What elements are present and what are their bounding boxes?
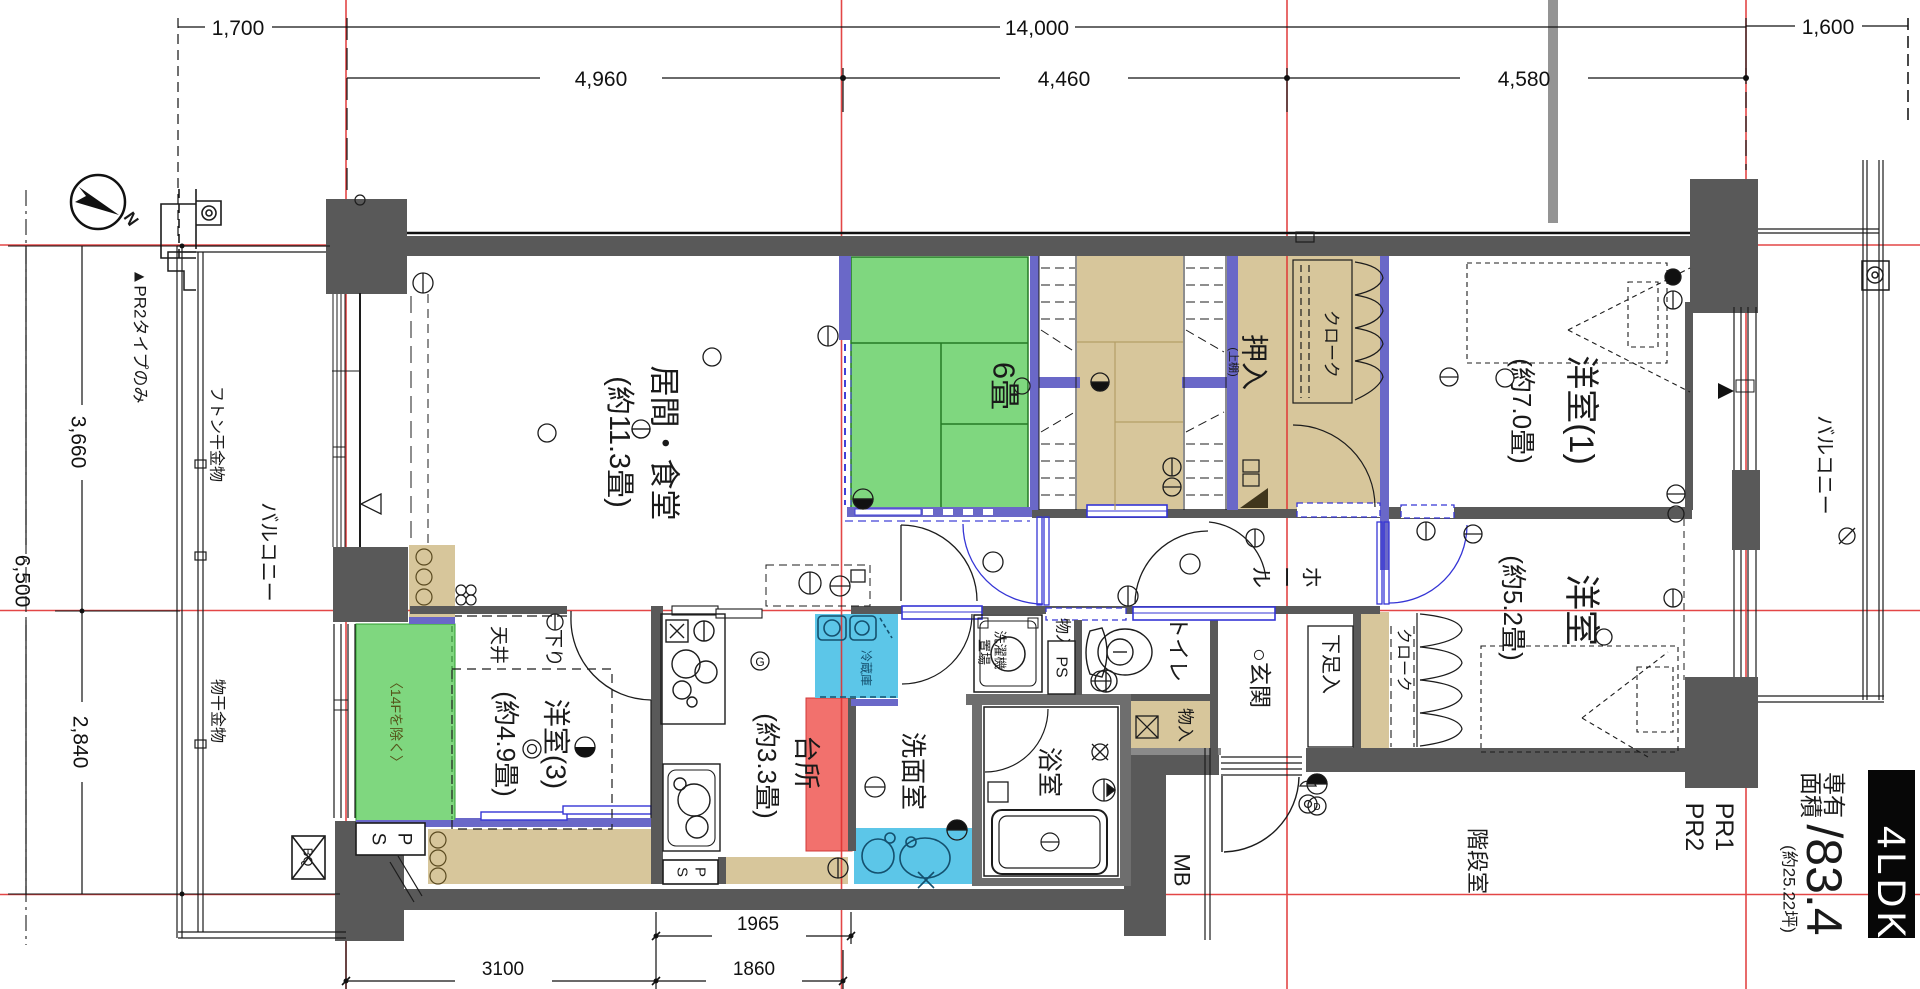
- svg-text:下り: 下り: [543, 629, 564, 667]
- svg-text:洋室: 洋室: [1562, 574, 1603, 646]
- svg-text:浴室: 浴室: [1035, 747, 1063, 797]
- svg-text:D: D: [1313, 802, 1320, 813]
- svg-text:BQ: BQ: [301, 848, 316, 867]
- svg-text:(約25.22坪): (約25.22坪): [1780, 845, 1799, 933]
- svg-text:面積: 面積: [1798, 772, 1824, 818]
- svg-text:P: P: [394, 833, 415, 846]
- svg-text:3100: 3100: [482, 959, 524, 980]
- svg-text:バルコニー: バルコニー: [1813, 415, 1835, 515]
- svg-text:バルコニー: バルコニー: [257, 502, 279, 602]
- svg-text:台所: 台所: [791, 735, 821, 789]
- svg-text:▲PR2タイプのみ: ▲PR2タイプのみ: [131, 269, 150, 404]
- svg-text:(約11.3畳): (約11.3畳): [603, 376, 636, 508]
- svg-text:冷蔵庫: 冷蔵庫: [859, 650, 873, 686]
- svg-text:PR2: PR2: [1680, 803, 1708, 852]
- svg-text:S: S: [368, 833, 389, 846]
- svg-text:トイレ: トイレ: [1166, 616, 1191, 682]
- svg-text:1,600: 1,600: [1802, 16, 1855, 39]
- svg-text:MB: MB: [1170, 854, 1195, 887]
- svg-text:S: S: [674, 867, 691, 877]
- svg-text:洗面室: 洗面室: [898, 732, 928, 810]
- svg-text:PS: PS: [1053, 656, 1070, 677]
- svg-text:P: P: [692, 867, 709, 877]
- svg-text:クローク: クローク: [1395, 628, 1413, 692]
- svg-text:/83.4: /83.4: [1796, 824, 1852, 935]
- svg-text:(約4.9畳): (約4.9畳): [491, 691, 521, 796]
- svg-text:(約3.3畳): (約3.3畳): [752, 713, 782, 818]
- svg-text:ホ: ホ: [1299, 566, 1324, 588]
- svg-text:(約7.0畳): (約7.0畳): [1507, 358, 1537, 463]
- svg-text:クローク: クローク: [1322, 310, 1341, 378]
- svg-text:物干金物: 物干金物: [209, 679, 227, 743]
- svg-text:洋室(1): 洋室(1): [1562, 355, 1600, 465]
- svg-text:4,960: 4,960: [575, 68, 628, 91]
- svg-text:○玄関: ○玄関: [1247, 648, 1273, 708]
- svg-text:(約5.2畳): (約5.2畳): [1498, 555, 1528, 660]
- svg-text:1860: 1860: [733, 959, 775, 980]
- svg-text:PR1: PR1: [1710, 803, 1738, 852]
- svg-text:2,840: 2,840: [69, 716, 92, 769]
- svg-text:14,000: 14,000: [1005, 17, 1069, 40]
- svg-text:1965: 1965: [737, 914, 779, 935]
- svg-text:4LDK: 4LDK: [1869, 826, 1913, 942]
- svg-text:置場: 置場: [977, 639, 992, 665]
- svg-text:物入: 物入: [1176, 708, 1195, 742]
- svg-text:下足入: 下足入: [1319, 634, 1341, 694]
- svg-text:押入: 押入: [1239, 334, 1270, 390]
- svg-text:6畳: 6畳: [987, 362, 1022, 410]
- svg-text:洋室(3): 洋室(3): [541, 699, 572, 789]
- svg-text:ル: ル: [1249, 566, 1274, 588]
- svg-text:4,460: 4,460: [1038, 68, 1091, 91]
- svg-text:6,500: 6,500: [11, 555, 34, 608]
- svg-text:ー: ー: [1274, 566, 1299, 588]
- svg-text:〈14Fを除く〉: 〈14Fを除く〉: [388, 675, 404, 769]
- svg-text:洗濯機: 洗濯機: [993, 630, 1008, 669]
- svg-text:3,660: 3,660: [67, 416, 90, 469]
- svg-text:(上棚): (上棚): [1227, 347, 1241, 376]
- svg-text:フトン干金物: フトン干金物: [208, 386, 226, 482]
- svg-text:天井: 天井: [488, 626, 510, 664]
- svg-text:居間・食堂: 居間・食堂: [647, 366, 682, 521]
- svg-text:階段室: 階段室: [1465, 828, 1490, 894]
- svg-text:4,580: 4,580: [1498, 68, 1551, 91]
- svg-text:1,700: 1,700: [212, 17, 265, 40]
- svg-text:G: G: [755, 655, 764, 669]
